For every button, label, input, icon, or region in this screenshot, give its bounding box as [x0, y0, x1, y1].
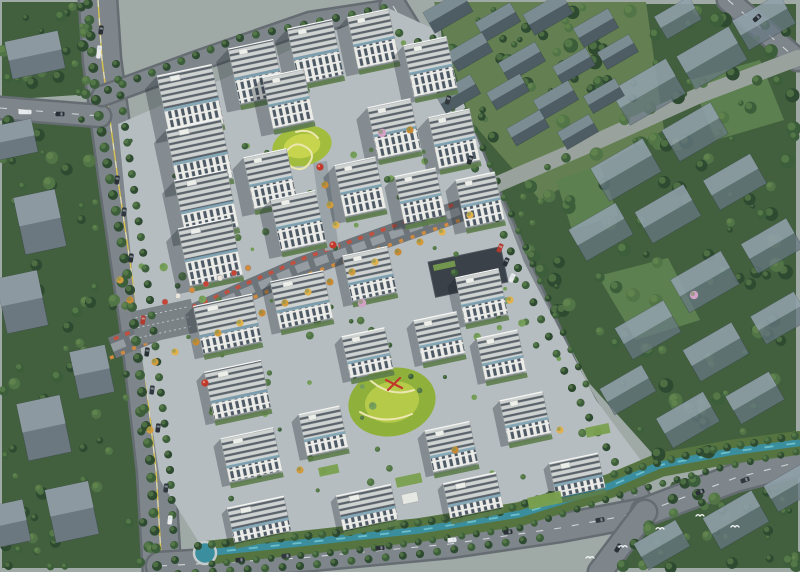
tree — [522, 244, 529, 251]
tree — [611, 458, 619, 466]
tree-highlight — [618, 561, 625, 568]
tree — [252, 31, 260, 39]
tree-highlight — [305, 532, 309, 536]
tree — [177, 57, 185, 65]
tree-highlight — [349, 11, 353, 15]
tree — [645, 484, 652, 491]
tree-highlight — [603, 444, 607, 448]
car-body — [19, 110, 32, 115]
car-body — [503, 529, 512, 535]
tree-highlight — [351, 152, 355, 156]
tree-highlight — [764, 437, 768, 441]
tree — [637, 426, 644, 433]
tree-highlight — [451, 270, 455, 274]
tree-highlight — [34, 548, 38, 552]
tree-highlight — [751, 439, 755, 443]
tree — [63, 346, 68, 351]
tree — [611, 338, 620, 347]
tree-highlight — [97, 127, 103, 133]
tree — [508, 211, 515, 218]
tree-highlight — [147, 427, 151, 431]
tree — [350, 151, 357, 158]
tree-highlight — [139, 264, 142, 267]
tree — [150, 526, 160, 536]
tree-highlight — [596, 328, 601, 333]
tree-highlight — [690, 291, 695, 296]
tree — [91, 95, 101, 105]
tree-highlight — [319, 531, 323, 535]
tree-highlight — [187, 335, 189, 337]
tree-highlight — [207, 46, 211, 50]
tree — [624, 5, 637, 18]
tree — [737, 441, 745, 449]
tree-highlight — [128, 303, 134, 309]
tree-highlight — [474, 333, 478, 337]
tree-highlight — [428, 518, 432, 522]
tree — [31, 514, 38, 521]
tree — [517, 525, 524, 532]
tree — [104, 86, 112, 94]
tree-highlight — [415, 539, 419, 543]
tree — [90, 79, 100, 89]
tree — [596, 327, 604, 335]
tree-highlight — [565, 39, 573, 47]
tree-highlight — [417, 551, 421, 555]
tree — [312, 551, 319, 558]
tree-highlight — [501, 195, 505, 199]
tree-highlight — [375, 447, 378, 450]
tree-highlight — [395, 249, 399, 253]
tree-highlight — [80, 444, 85, 449]
tree-highlight — [360, 416, 362, 418]
tree — [121, 123, 129, 131]
tree — [126, 154, 134, 162]
tree — [652, 448, 666, 462]
tree — [658, 346, 666, 354]
tree-highlight — [625, 467, 629, 471]
tree-highlight — [365, 8, 369, 12]
tree-highlight — [569, 385, 573, 389]
tree — [8, 378, 20, 390]
car-windshield — [141, 317, 144, 319]
tree — [560, 329, 567, 336]
tree-highlight — [476, 17, 479, 20]
tree — [332, 14, 340, 22]
tree-highlight — [358, 299, 363, 304]
tree-highlight — [699, 499, 703, 503]
tree-highlight — [515, 265, 519, 269]
tree — [131, 336, 141, 346]
tree-highlight — [138, 428, 142, 432]
tree — [648, 133, 661, 146]
tree-highlight — [161, 420, 165, 424]
red-sculpture-ball — [201, 379, 208, 386]
tree-highlight — [563, 299, 570, 306]
tree — [119, 107, 127, 115]
tree — [148, 311, 156, 319]
tree — [577, 399, 585, 407]
tree — [357, 547, 364, 554]
tree — [520, 474, 526, 480]
tree-highlight — [591, 148, 598, 155]
tree — [367, 478, 375, 486]
market-umbrella — [162, 299, 168, 305]
tree — [122, 269, 132, 279]
tree — [433, 246, 437, 250]
tree-highlight — [307, 381, 310, 384]
tree — [538, 199, 544, 205]
tree-highlight — [557, 116, 565, 124]
tree-highlight — [485, 541, 489, 545]
tree-highlight — [133, 202, 137, 206]
tree — [85, 297, 96, 308]
tree-highlight — [680, 479, 686, 485]
tree-highlight — [168, 497, 172, 501]
tree-highlight — [500, 231, 504, 235]
tree-highlight — [575, 364, 579, 368]
tree-highlight — [56, 12, 62, 18]
tree — [473, 531, 480, 538]
tree-highlight — [555, 284, 558, 287]
tree-highlight — [142, 265, 146, 269]
tree — [326, 201, 333, 208]
tree-highlight — [64, 346, 67, 349]
market-umbrella — [189, 287, 195, 293]
tree-highlight — [134, 75, 138, 79]
tree — [382, 553, 390, 561]
tree-highlight — [480, 145, 484, 149]
tree — [723, 443, 731, 451]
tree — [406, 126, 413, 133]
tree-highlight — [160, 264, 165, 269]
tree-highlight — [140, 405, 146, 411]
tree-highlight — [509, 211, 513, 215]
tree-highlight — [244, 566, 248, 570]
tree-highlight — [588, 501, 592, 505]
tree — [166, 466, 174, 474]
tree-highlight — [365, 556, 369, 560]
tree-highlight — [417, 388, 420, 391]
tree-highlight — [152, 359, 156, 363]
tree-highlight — [583, 381, 587, 385]
tree — [26, 77, 38, 89]
tree-highlight — [545, 164, 549, 168]
tree-highlight — [90, 80, 96, 86]
market-umbrella — [245, 265, 251, 271]
tree-highlight — [53, 72, 60, 79]
tree — [96, 437, 103, 444]
car-windshield — [380, 546, 382, 549]
tree — [500, 231, 508, 239]
tree-highlight — [565, 24, 570, 29]
tree — [485, 541, 493, 549]
tree — [63, 322, 74, 333]
tree-highlight — [674, 477, 678, 481]
tree-highlight — [44, 178, 51, 185]
tree-highlight — [172, 349, 176, 353]
car-body — [375, 545, 384, 551]
tree-highlight — [766, 555, 770, 559]
tree — [139, 404, 149, 414]
tree — [745, 278, 757, 290]
tree-highlight — [63, 322, 69, 328]
tree-highlight — [279, 564, 283, 568]
tree-highlight — [327, 550, 331, 554]
tree-highlight — [349, 269, 353, 273]
tree-highlight — [688, 473, 692, 477]
tree — [745, 102, 757, 114]
tree-highlight — [704, 250, 711, 257]
tree-highlight — [531, 520, 535, 524]
tree-highlight — [79, 203, 83, 207]
tree — [626, 288, 640, 302]
tree — [416, 238, 423, 245]
tree — [723, 390, 728, 395]
tree-highlight — [586, 414, 590, 418]
tree — [674, 476, 681, 483]
tree — [123, 139, 131, 147]
tree-highlight — [525, 181, 532, 188]
tree — [62, 563, 69, 570]
tree — [61, 163, 73, 175]
tree-highlight — [135, 218, 139, 222]
tree-highlight — [557, 427, 561, 431]
tree — [553, 256, 565, 268]
tree-highlight — [78, 216, 83, 221]
tree — [518, 320, 525, 327]
tree — [133, 353, 143, 363]
tree — [114, 222, 124, 232]
tree-highlight — [106, 175, 112, 181]
sculpture-ball — [329, 241, 336, 248]
tree — [471, 394, 477, 400]
tree-highlight — [682, 452, 686, 456]
tree — [170, 541, 178, 549]
tree — [92, 482, 103, 493]
tree-highlight — [297, 467, 301, 471]
tree-highlight — [76, 339, 81, 344]
tree-highlight — [747, 459, 751, 463]
tree — [514, 264, 522, 272]
tree-highlight — [433, 246, 435, 248]
tree-highlight — [149, 509, 155, 515]
tree — [157, 389, 165, 397]
tree — [86, 31, 96, 41]
tree-highlight — [69, 3, 73, 7]
tree — [146, 296, 154, 304]
tree-highlight — [554, 257, 561, 264]
tree — [450, 545, 458, 553]
tree-highlight — [546, 516, 550, 520]
tree-highlight — [92, 482, 98, 488]
tree-highlight — [577, 399, 581, 403]
tree — [127, 302, 137, 312]
tree — [408, 374, 414, 380]
tree-highlight — [765, 45, 773, 53]
tree-highlight — [23, 15, 26, 18]
tree-highlight — [114, 222, 120, 228]
tree-highlight — [88, 48, 94, 54]
tree-highlight — [651, 30, 658, 37]
tree — [790, 132, 800, 142]
residential-building — [468, 330, 527, 388]
tree-highlight — [297, 563, 301, 567]
tree — [30, 259, 42, 271]
tree — [773, 76, 783, 86]
tree — [137, 387, 147, 397]
tree-highlight — [84, 0, 90, 5]
tree-highlight — [262, 565, 266, 569]
tree — [296, 562, 304, 570]
tree-highlight — [507, 248, 511, 252]
tree-highlight — [764, 527, 769, 532]
tree-highlight — [387, 466, 391, 470]
tree-highlight — [106, 448, 110, 452]
tree — [518, 211, 523, 216]
tree — [111, 206, 121, 216]
tree-highlight — [649, 134, 656, 141]
tree — [78, 116, 85, 123]
tree-highlight — [4, 74, 9, 79]
tree — [428, 517, 436, 525]
tree-highlight — [16, 364, 21, 369]
tree-highlight — [502, 539, 506, 543]
tree — [360, 384, 365, 389]
tree-highlight — [553, 350, 557, 354]
tree-highlight — [253, 557, 257, 561]
tree-highlight — [521, 474, 524, 477]
tree-highlight — [224, 560, 228, 564]
tree-highlight — [372, 545, 376, 549]
tree-highlight — [122, 124, 126, 128]
sculpture-ball-highlight — [318, 165, 320, 167]
tree — [108, 190, 118, 200]
tree-highlight — [149, 69, 153, 73]
tree-highlight — [229, 496, 232, 499]
tree-highlight — [530, 220, 533, 223]
tree — [702, 468, 709, 475]
tree — [386, 543, 393, 550]
car-body — [235, 557, 244, 563]
tree-highlight — [259, 310, 263, 314]
tree — [15, 363, 24, 372]
tree-highlight — [86, 32, 92, 38]
tree — [330, 559, 338, 567]
tree — [652, 257, 663, 268]
tree — [552, 312, 559, 319]
tree-highlight — [792, 433, 796, 437]
tree-highlight — [163, 436, 167, 440]
tree-highlight — [307, 332, 311, 336]
tree — [429, 537, 436, 544]
tree — [544, 164, 551, 171]
tree-highlight — [793, 449, 797, 453]
tree — [738, 100, 744, 106]
tree-highlight — [222, 540, 226, 544]
tree — [658, 176, 671, 189]
tree-highlight — [519, 212, 522, 215]
tree — [785, 88, 799, 102]
tree-highlight — [139, 519, 144, 524]
tree — [102, 158, 112, 168]
tree-highlight — [115, 76, 119, 80]
tree — [151, 342, 159, 350]
tree — [152, 561, 162, 571]
tree — [791, 432, 799, 440]
tree — [148, 69, 156, 77]
tree-highlight — [84, 155, 91, 162]
tree — [119, 80, 127, 88]
tree-highlight — [193, 52, 197, 56]
tree-highlight — [497, 325, 500, 328]
car-windshield — [99, 27, 102, 29]
tree-highlight — [313, 551, 317, 555]
tree — [519, 536, 527, 544]
tree — [479, 106, 486, 113]
tree — [757, 209, 767, 219]
tree — [88, 63, 98, 73]
tree-highlight — [594, 77, 601, 84]
tree — [791, 555, 798, 562]
tree-highlight — [253, 31, 257, 35]
tree — [763, 526, 773, 536]
tree — [223, 559, 230, 566]
tree-highlight — [646, 484, 650, 488]
tree — [588, 501, 595, 508]
tree — [583, 381, 590, 388]
tree — [23, 15, 29, 21]
tree — [625, 467, 633, 475]
tree — [517, 37, 523, 43]
tree-highlight — [518, 37, 521, 40]
tree-highlight — [612, 459, 616, 463]
tree-highlight — [63, 47, 68, 52]
tree-highlight — [724, 444, 728, 448]
tree-highlight — [62, 164, 69, 171]
tree-highlight — [82, 90, 87, 95]
tree — [137, 233, 145, 241]
tree-highlight — [522, 500, 526, 504]
tree — [316, 488, 320, 492]
tree — [545, 333, 553, 341]
tree-highlight — [536, 265, 543, 272]
tree-highlight — [13, 473, 16, 476]
tree — [258, 309, 265, 316]
tree-highlight — [740, 429, 744, 433]
tree — [458, 533, 465, 540]
tree-highlight — [36, 485, 40, 489]
tree-highlight — [235, 235, 239, 239]
tree-highlight — [473, 531, 477, 535]
tree-highlight — [580, 5, 584, 9]
tree-highlight — [136, 371, 142, 377]
sculpture-ball-highlight — [203, 381, 205, 383]
tree — [132, 202, 140, 210]
tree — [318, 531, 326, 539]
tree-highlight — [545, 333, 549, 337]
tree — [87, 47, 97, 57]
car-windshield — [145, 349, 148, 351]
tree — [451, 269, 458, 276]
tree — [150, 327, 158, 335]
tree-highlight — [348, 557, 352, 561]
tree-highlight — [625, 6, 632, 13]
tree — [360, 416, 364, 420]
tree-highlight — [331, 559, 335, 563]
tree-highlight — [267, 371, 270, 374]
tree-highlight — [333, 15, 337, 19]
tree — [75, 339, 84, 348]
